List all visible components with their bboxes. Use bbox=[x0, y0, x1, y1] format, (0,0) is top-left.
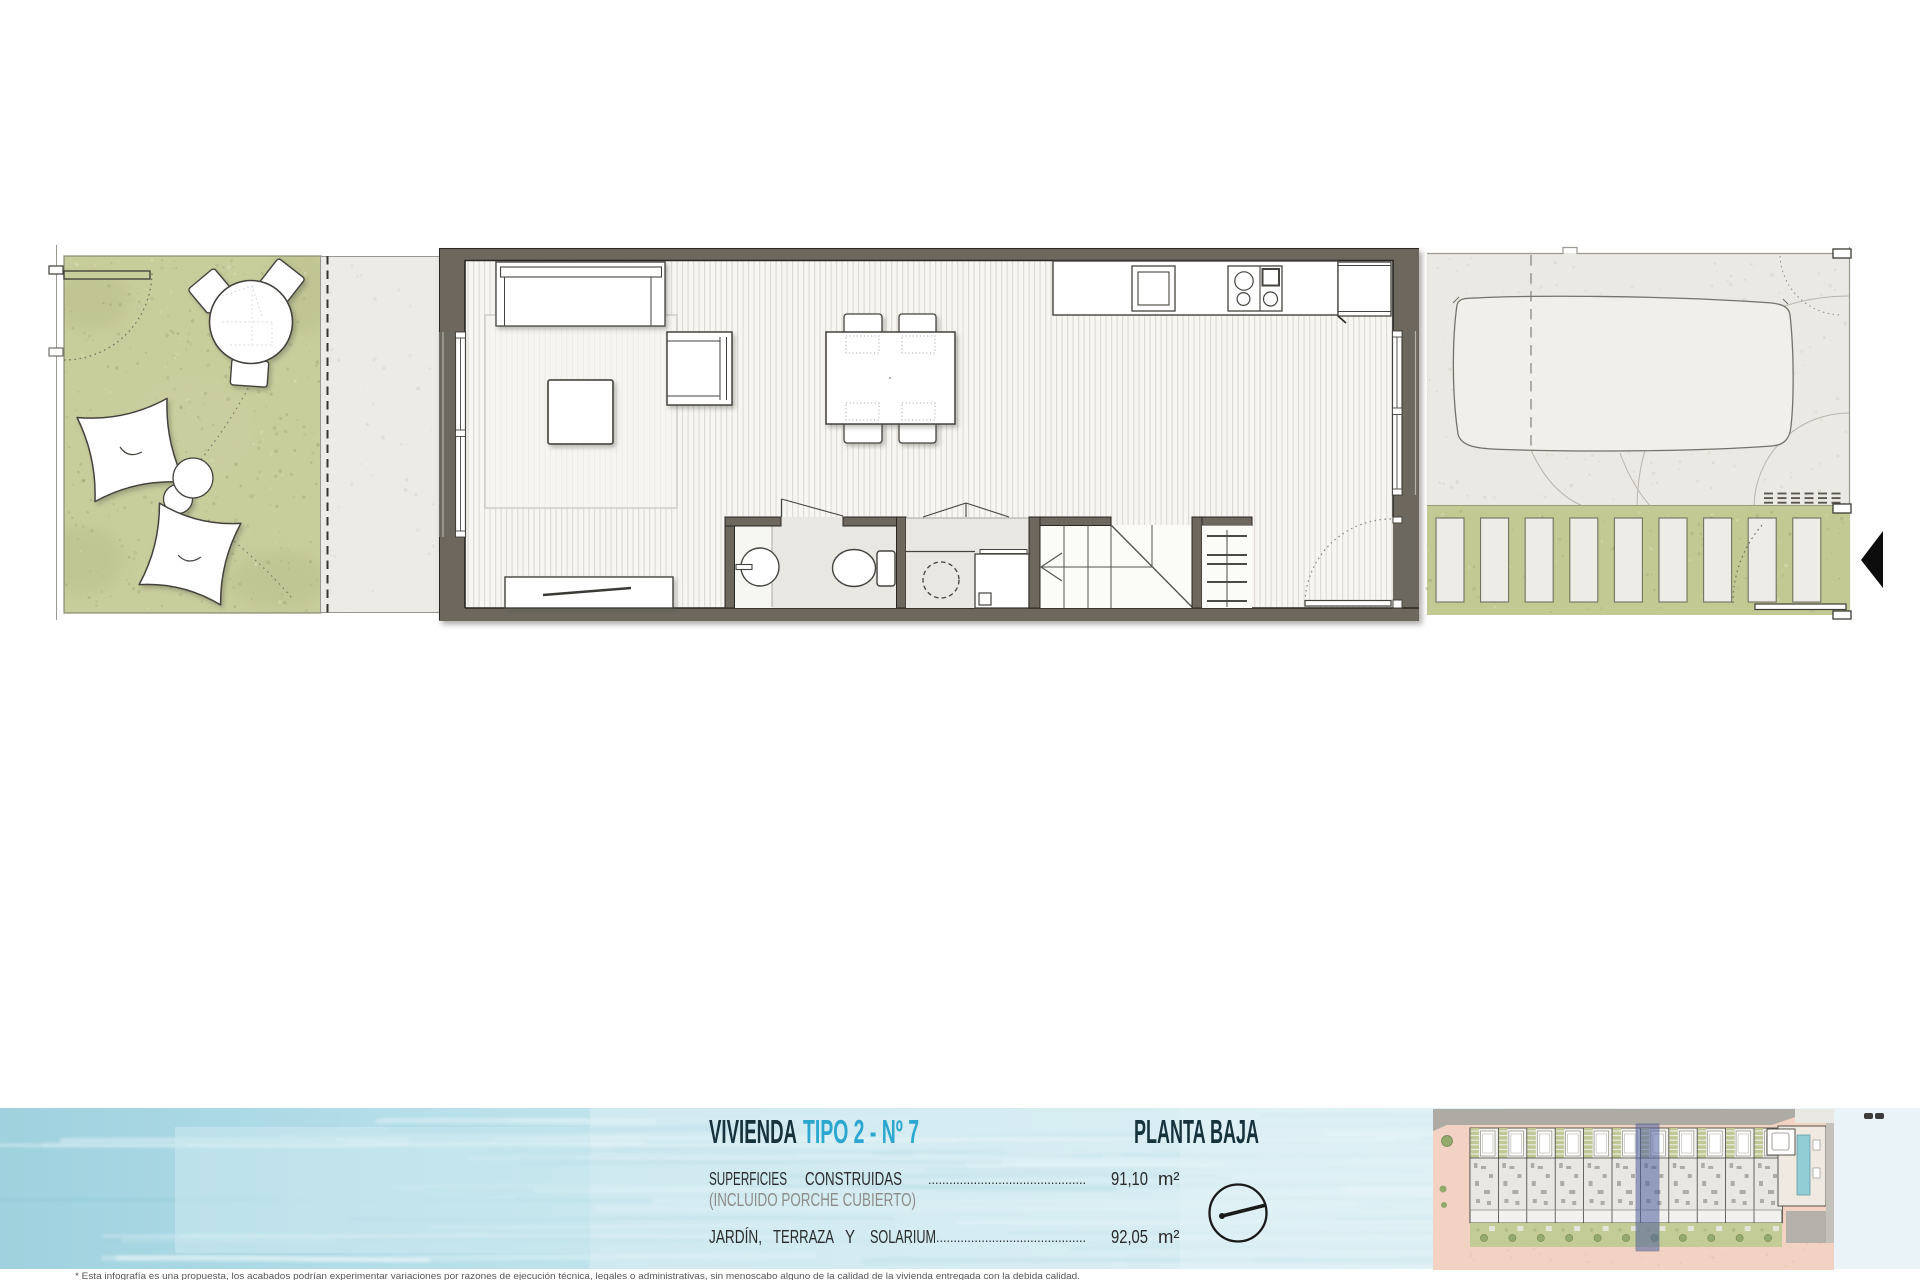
svg-text:m²: m² bbox=[1158, 1168, 1180, 1189]
svg-text:..............................: ........................................… bbox=[936, 1229, 1086, 1245]
svg-text:SOLARIUM: SOLARIUM bbox=[870, 1226, 936, 1247]
svg-text:Y: Y bbox=[845, 1226, 855, 1247]
svg-text:..............................: ........................................… bbox=[928, 1171, 1086, 1187]
svg-text:TIPO 2 - Nº 7: TIPO 2 - Nº 7 bbox=[803, 1113, 919, 1150]
svg-text:(INCLUIDO PORCHE CUBIERTO): (INCLUIDO PORCHE CUBIERTO) bbox=[709, 1189, 916, 1210]
svg-text:SUPERFICIES: SUPERFICIES bbox=[709, 1168, 787, 1189]
svg-text:m²: m² bbox=[1158, 1226, 1180, 1247]
svg-text:JARDÍN,: JARDÍN, bbox=[709, 1226, 762, 1247]
svg-text:PLANTA BAJA: PLANTA BAJA bbox=[1134, 1113, 1259, 1150]
svg-text:91,10: 91,10 bbox=[1111, 1168, 1148, 1189]
svg-text:TERRAZA: TERRAZA bbox=[773, 1226, 834, 1247]
svg-text:92,05: 92,05 bbox=[1111, 1226, 1148, 1247]
svg-text:VIVIENDA: VIVIENDA bbox=[709, 1113, 797, 1150]
svg-text:* Esta infografía es una propu: * Esta infografía es una propuesta, los … bbox=[75, 1271, 1080, 1280]
svg-text:CONSTRUIDAS: CONSTRUIDAS bbox=[805, 1168, 902, 1189]
